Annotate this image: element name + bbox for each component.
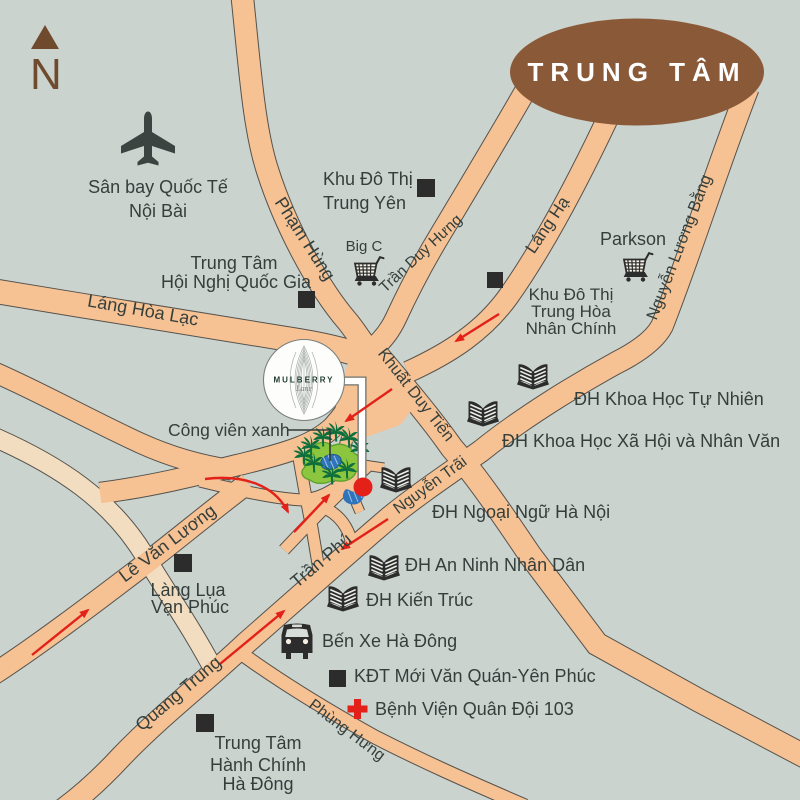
svg-text:ĐH Kiến Trúc: ĐH Kiến Trúc — [366, 590, 473, 610]
svg-text:ĐH Khoa Học Xã Hội và Nhân Văn: ĐH Khoa Học Xã Hội và Nhân Văn — [502, 431, 780, 451]
svg-text:Sân bay Quốc Tế: Sân bay Quốc Tế — [88, 177, 228, 197]
svg-text:Hà Đông: Hà Đông — [222, 774, 293, 794]
svg-text:Parkson: Parkson — [600, 229, 666, 249]
svg-text:Nhân Chính: Nhân Chính — [526, 319, 617, 338]
svg-text:Bệnh Viện Quân Đội 103: Bệnh Viện Quân Đội 103 — [375, 699, 574, 719]
svg-text:Bến Xe Hà Đông: Bến Xe Hà Đông — [322, 631, 457, 651]
svg-text:ĐH Ngoại Ngữ Hà Nội: ĐH Ngoại Ngữ Hà Nội — [432, 502, 610, 522]
svg-text:Trung Tâm: Trung Tâm — [214, 733, 301, 753]
svg-text:Nội Bài: Nội Bài — [129, 201, 187, 221]
svg-text:Hành Chính: Hành Chính — [210, 755, 306, 775]
svg-text:ĐH Khoa Học Tự Nhiên: ĐH Khoa Học Tự Nhiên — [574, 389, 764, 409]
svg-text:Big C: Big C — [346, 238, 383, 255]
svg-text:Công viên xanh: Công viên xanh — [168, 420, 290, 440]
svg-text:Hội Nghị Quốc Gia: Hội Nghị Quốc Gia — [161, 272, 312, 292]
svg-text:Trung Tâm: Trung Tâm — [190, 253, 277, 273]
svg-text:Khu Đô Thị: Khu Đô Thị — [323, 169, 413, 189]
svg-text:ĐH An Ninh Nhân Dân: ĐH An Ninh Nhân Dân — [405, 555, 585, 575]
svg-text:TRUNG TÂM: TRUNG TÂM — [528, 57, 747, 87]
svg-text:N: N — [30, 50, 62, 99]
svg-text:Vạn Phúc: Vạn Phúc — [151, 597, 229, 617]
svg-text:KĐT Mới Văn Quán-Yên Phúc: KĐT Mới Văn Quán-Yên Phúc — [354, 666, 596, 686]
svg-text:Trung Yên: Trung Yên — [323, 193, 406, 213]
svg-text:Lane: Lane — [295, 384, 312, 393]
